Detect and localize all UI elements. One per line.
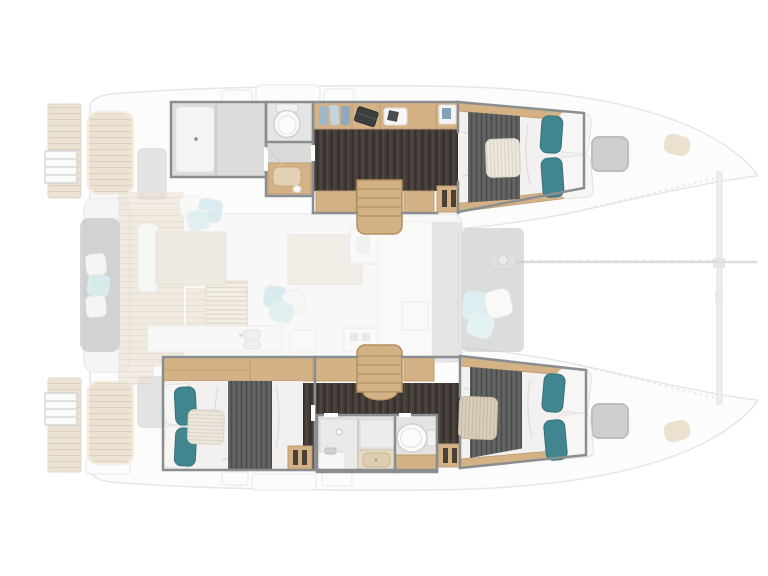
transom-deck-top [88,112,133,194]
bathroom-mirror-panel [360,420,394,448]
boarding-ladder-top [45,151,77,183]
galley-cabinet [290,330,316,352]
hall-floor [266,143,313,162]
crossbeam-fitting-2 [715,290,723,303]
deck-hatch-top [592,137,628,171]
showerhead [336,429,342,435]
forward-crossbeam [717,172,722,404]
appliance-knob-2 [362,333,370,341]
bowl-drain [375,459,378,462]
lower-bench-right [404,357,434,381]
transom-deck-bottom [88,382,133,464]
lower-basin [318,452,345,469]
galley-counter [148,326,282,352]
vanity-basin [273,167,301,186]
appliance-knob [350,333,358,341]
wc-wood-strip [396,455,436,470]
deck-hatch-bottom [592,404,628,438]
fore-shelf-band [163,357,357,381]
ribbed-pillow-upper [485,138,520,177]
boarding-ladder-bottom [45,393,77,425]
catamaran-floorplan-svg [0,0,768,576]
ribbed-pillow-aft [458,396,497,439]
saloon-sofa [138,224,158,292]
folded-clothes [319,105,351,125]
anchor-windlass [490,252,718,269]
deck-grate-vent [206,281,247,330]
upper-bench-left [316,191,356,213]
shower-drain [194,137,198,141]
upper-bench-right [404,191,434,213]
lower-hull-interior [163,345,595,472]
nightstand-book [442,108,451,119]
ribbed-pillow-fore [187,409,224,444]
soap-dispenser [293,186,301,193]
basin-faucet [325,448,336,454]
starboard-counter [378,222,432,362]
toilet-upper [274,104,300,138]
tray-item [387,110,399,122]
fore-bottle-cabinet [288,446,312,469]
aft-bottle-cabinet [438,444,462,467]
lower-stairs [357,345,402,400]
fridge-door [356,236,370,254]
companionway-band [432,222,462,362]
saloon-table [156,232,226,285]
fore-bed-blanket [228,381,272,470]
floorplan-canvas [0,0,768,576]
upper-stairs [357,180,402,234]
